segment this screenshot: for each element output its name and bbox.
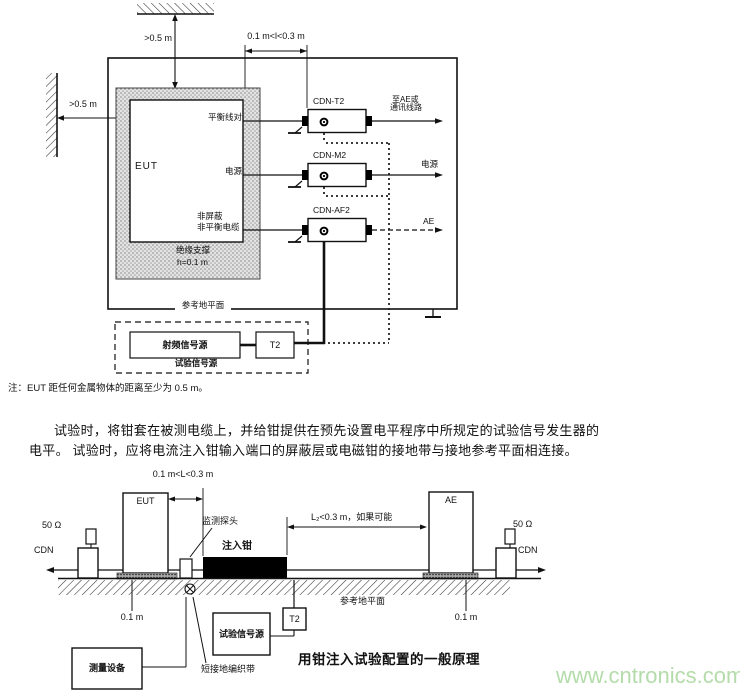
dim-ceiling-label: >0.5 m xyxy=(128,33,172,43)
braid-label: 短接地编织带 xyxy=(201,664,255,674)
port-unshielded-label-1: 非屏蔽 xyxy=(197,212,223,222)
test-source-label-2: 试验信号源 xyxy=(214,614,269,654)
probe-label: 监测探头 xyxy=(202,516,238,526)
figure1-note: 注：EUT 距任何金属物体的距离至少为 0.5 m。 xyxy=(8,384,208,395)
cdn-right-label: CDN xyxy=(518,545,538,555)
t2-label-1: T2 xyxy=(257,333,293,357)
ae-label: AE xyxy=(429,495,473,505)
test-source-label-1: 试验信号源 xyxy=(156,359,236,369)
dim-wall-label: >0.5 m xyxy=(60,99,106,109)
dim-clamp-label: L₂<0.3 m，如果可能 xyxy=(311,512,392,522)
cdn-af2-unit xyxy=(288,219,443,243)
height-left-label: 0.1 m xyxy=(110,612,154,622)
cdn-m2-name: CDN-M2 xyxy=(313,151,346,161)
r50-right-label: 50 Ω xyxy=(513,519,532,529)
support-label: 绝缘支撑 xyxy=(176,246,210,256)
eut-label-1: EUT xyxy=(135,161,158,173)
cdn-m2-out-label: 电源 xyxy=(421,160,438,170)
terminator-left xyxy=(86,529,96,544)
ground-hatch xyxy=(58,580,510,595)
watermark: www.cntronics.com xyxy=(556,663,740,688)
cdn-left-box xyxy=(78,548,98,578)
injection-clamp-box xyxy=(203,557,287,578)
body-paragraph-line-2: 电平。 试验时，应将电流注入钳输入端口的屏蔽层或电磁钳的接地带与接地参考平面相连… xyxy=(29,444,578,459)
ceiling-hatch xyxy=(137,3,214,14)
cdn-t2-out-label-2: 通讯线路 xyxy=(390,103,422,112)
measuring-equipment-label: 测量设备 xyxy=(73,649,141,688)
port-unshielded-label-2: 非平衡电缆 xyxy=(197,223,240,233)
t2-label-2: T2 xyxy=(284,609,305,629)
figure-linework xyxy=(0,0,740,699)
port-power-label: 电源 xyxy=(196,167,242,177)
cdn-m2-unit xyxy=(288,164,443,188)
height-right-label: 0.1 m xyxy=(444,612,488,622)
rf-generator-label: 射频信号源 xyxy=(131,333,239,357)
body-paragraph-line-1: 试验时，将钳套在被测电缆上，并给钳提供在预先设置电平程序中所规定的试验信号发生器… xyxy=(54,424,599,439)
monitor-probe-box xyxy=(180,559,192,578)
wall-hatch xyxy=(46,73,57,157)
ground-plane-label-1: 参考地平面 xyxy=(175,301,231,311)
cdn-right-box xyxy=(496,548,516,578)
cdn-af2-name: CDN-AF2 xyxy=(313,206,350,216)
support-height-label: h=0.1 m xyxy=(177,258,208,268)
port-balanced-label: 平衡线对 xyxy=(196,113,242,123)
clamp-label: 注入钳 xyxy=(222,541,252,553)
dim-cable-label-1: 0.1 m<l<0.3 m xyxy=(226,31,326,41)
cdn-left-label: CDN xyxy=(34,545,54,555)
cdn-t2-name: CDN-T2 xyxy=(313,97,344,107)
cdn-t2-unit xyxy=(288,110,443,134)
ground-plane-label-2: 参考地平面 xyxy=(340,596,385,606)
terminator-right xyxy=(505,529,515,544)
cdn-af2-out-label: AE xyxy=(423,217,434,227)
r50-left-label: 50 Ω xyxy=(42,520,61,530)
dim-cable-label-2: 0.1 m<L<0.3 m xyxy=(131,469,235,479)
scanned-page: >0.5 m 0.1 m<l<0.3 m >0.5 m EUT 平衡线对 电源 … xyxy=(0,0,740,699)
eut-label-2: EUT xyxy=(123,496,168,506)
figure2-caption: 用钳注入试验配置的一般原理 xyxy=(298,652,480,668)
